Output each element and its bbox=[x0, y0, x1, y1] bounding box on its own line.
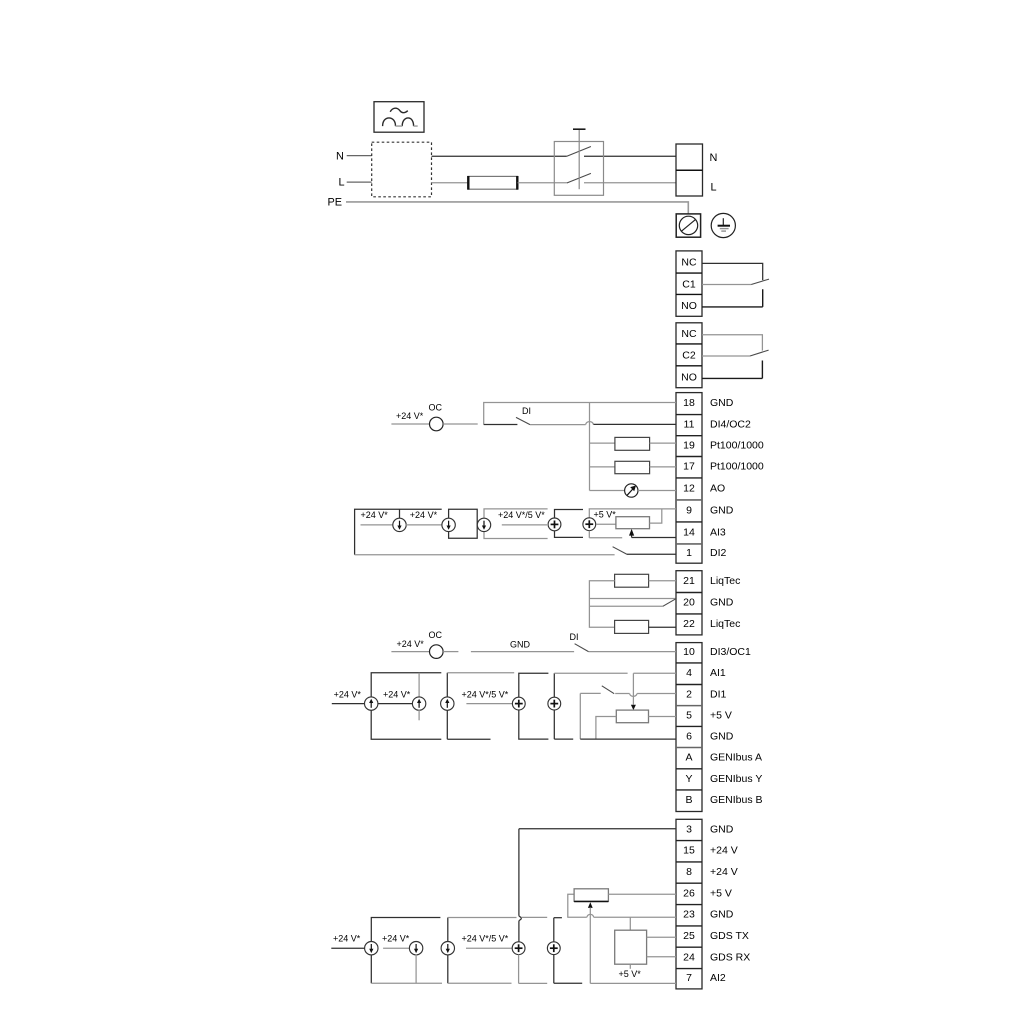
svg-text:2: 2 bbox=[686, 688, 692, 700]
svg-text:18: 18 bbox=[683, 397, 695, 409]
svg-text:OC: OC bbox=[429, 403, 443, 413]
svg-text:10: 10 bbox=[683, 646, 695, 658]
svg-text:N: N bbox=[336, 151, 344, 163]
svg-text:NO: NO bbox=[681, 300, 697, 312]
svg-text:19: 19 bbox=[683, 440, 695, 452]
svg-text:LiqTec: LiqTec bbox=[710, 575, 740, 587]
svg-text:L: L bbox=[711, 181, 717, 193]
svg-text:4: 4 bbox=[686, 667, 692, 679]
svg-text:GND: GND bbox=[710, 730, 734, 742]
svg-text:23: 23 bbox=[683, 909, 695, 921]
svg-text:GND: GND bbox=[510, 639, 531, 649]
svg-text:+24 V*: +24 V* bbox=[382, 934, 410, 944]
svg-text:+24 V*/5 V*: +24 V*/5 V* bbox=[462, 934, 509, 944]
svg-text:AI1: AI1 bbox=[710, 667, 726, 679]
svg-text:N: N bbox=[710, 152, 718, 164]
svg-text:B: B bbox=[685, 794, 692, 806]
svg-text:LiqTec: LiqTec bbox=[710, 618, 740, 630]
svg-text:+24 V: +24 V bbox=[710, 845, 738, 857]
svg-text:GENIbus B: GENIbus B bbox=[710, 794, 763, 806]
svg-text:+5 V: +5 V bbox=[710, 887, 732, 899]
svg-text:22: 22 bbox=[683, 618, 695, 630]
svg-text:DI2: DI2 bbox=[710, 547, 727, 559]
svg-text:+24 V*: +24 V* bbox=[361, 510, 389, 520]
svg-text:12: 12 bbox=[683, 482, 695, 494]
svg-text:DI: DI bbox=[522, 406, 531, 416]
svg-text:17: 17 bbox=[683, 461, 695, 473]
svg-text:26: 26 bbox=[683, 887, 695, 899]
svg-text:GENIbus A: GENIbus A bbox=[710, 752, 762, 764]
svg-text:+24 V: +24 V bbox=[710, 866, 738, 878]
svg-text:C1: C1 bbox=[682, 278, 696, 290]
svg-text:+24 V*/5 V*: +24 V*/5 V* bbox=[462, 689, 509, 699]
svg-text:NC: NC bbox=[681, 257, 697, 269]
svg-text:GND: GND bbox=[710, 823, 734, 835]
svg-text:+24 V*: +24 V* bbox=[334, 689, 362, 699]
svg-text:A: A bbox=[685, 752, 692, 764]
svg-text:GND: GND bbox=[710, 597, 734, 609]
svg-text:+5 V*: +5 V* bbox=[594, 509, 617, 519]
svg-text:GDS TX: GDS TX bbox=[710, 930, 749, 942]
svg-text:15: 15 bbox=[683, 845, 695, 857]
svg-text:OC: OC bbox=[429, 630, 443, 640]
svg-text:Y: Y bbox=[685, 773, 692, 785]
svg-text:+24 V*: +24 V* bbox=[396, 411, 424, 421]
svg-text:+5 V: +5 V bbox=[710, 709, 732, 721]
svg-text:GND: GND bbox=[710, 504, 734, 516]
svg-text:24: 24 bbox=[683, 951, 695, 963]
svg-text:+24 V*: +24 V* bbox=[333, 934, 361, 944]
svg-text:AO: AO bbox=[710, 482, 725, 494]
svg-text:DI3/OC1: DI3/OC1 bbox=[710, 646, 751, 658]
svg-text:GND: GND bbox=[710, 397, 734, 409]
svg-text:14: 14 bbox=[683, 526, 695, 538]
svg-text:6: 6 bbox=[686, 730, 692, 742]
svg-text:+24 V*: +24 V* bbox=[410, 510, 438, 520]
svg-text:11: 11 bbox=[684, 419, 695, 431]
svg-text:DI1: DI1 bbox=[710, 688, 727, 700]
svg-text:AI3: AI3 bbox=[710, 526, 726, 538]
svg-text:C2: C2 bbox=[682, 350, 696, 362]
svg-text:GDS RX: GDS RX bbox=[710, 951, 750, 963]
svg-text:8: 8 bbox=[686, 866, 692, 878]
svg-text:9: 9 bbox=[686, 504, 692, 516]
svg-text:20: 20 bbox=[683, 597, 695, 609]
svg-text:1: 1 bbox=[686, 547, 692, 559]
svg-text:3: 3 bbox=[686, 823, 692, 835]
svg-text:GENIbus Y: GENIbus Y bbox=[710, 773, 762, 785]
svg-text:7: 7 bbox=[686, 972, 692, 984]
svg-text:Pt100/1000: Pt100/1000 bbox=[710, 461, 764, 473]
svg-text:DI: DI bbox=[570, 632, 579, 642]
svg-text:DI4/OC2: DI4/OC2 bbox=[710, 419, 751, 431]
svg-text:PE: PE bbox=[328, 196, 343, 208]
svg-text:+5 V*: +5 V* bbox=[619, 969, 642, 979]
svg-text:NO: NO bbox=[681, 372, 697, 384]
svg-text:GND: GND bbox=[710, 909, 734, 921]
svg-text:21: 21 bbox=[683, 575, 695, 587]
svg-text:L: L bbox=[339, 177, 345, 189]
svg-text:+24 V*/5 V*: +24 V*/5 V* bbox=[498, 510, 545, 520]
svg-text:+24 V*: +24 V* bbox=[383, 689, 411, 699]
svg-text:25: 25 bbox=[683, 930, 695, 942]
svg-text:NC: NC bbox=[681, 328, 697, 340]
svg-text:5: 5 bbox=[686, 709, 692, 721]
svg-text:+24 V*: +24 V* bbox=[397, 639, 425, 649]
svg-text:AI2: AI2 bbox=[710, 972, 726, 984]
svg-text:Pt100/1000: Pt100/1000 bbox=[710, 440, 764, 452]
